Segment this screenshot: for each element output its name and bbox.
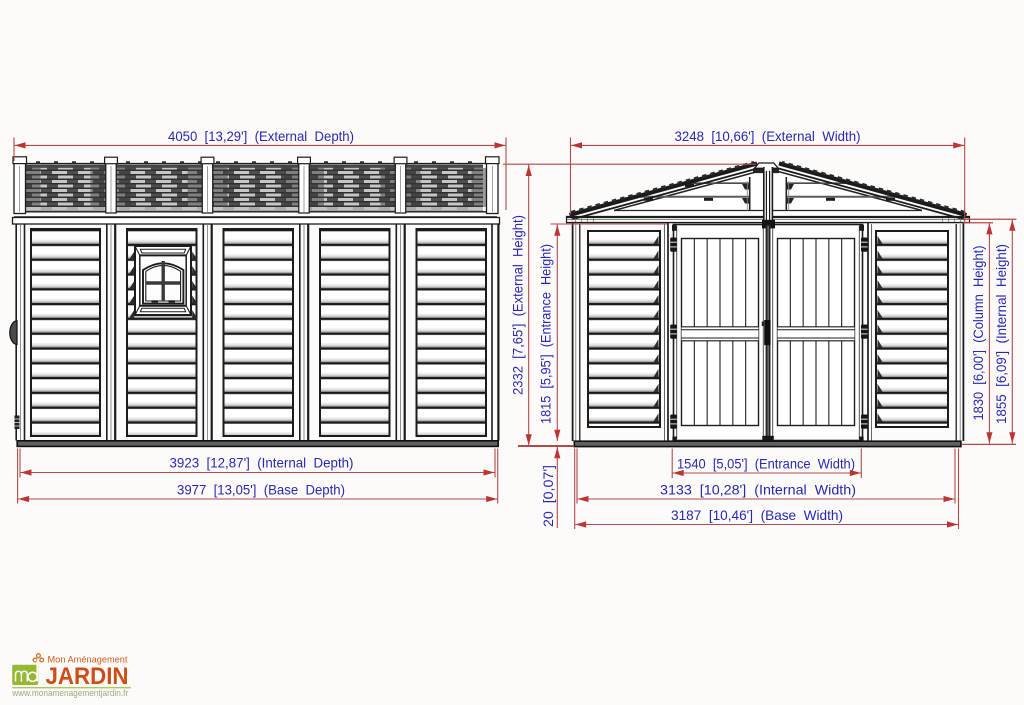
svg-text:1815 [5,95'] (Entrance Heig: 1815 [5,95'] (Entrance Height) bbox=[538, 244, 554, 424]
svg-text:4050 [13,29'] (External Dep: 4050 [13,29'] (External Depth) bbox=[168, 128, 354, 144]
svg-text:3187 [10,46'] (Base Width): 3187 [10,46'] (Base Width) bbox=[671, 507, 843, 523]
svg-text:20 [0,07']: 20 [0,07'] bbox=[540, 465, 556, 527]
svg-text:1540 [5,05'] (Entrance Widt: 1540 [5,05'] (Entrance Width) bbox=[677, 456, 855, 472]
svg-text:1830 [6,00'] (Column Height: 1830 [6,00'] (Column Height) bbox=[970, 245, 986, 420]
svg-text:1855 [6,09'] (Internal Heig: 1855 [6,09'] (Internal Height) bbox=[993, 244, 1009, 424]
svg-text:3133 [10,28'] (Internal Wid: 3133 [10,28'] (Internal Width) bbox=[660, 482, 856, 498]
svg-text:www.monamenagementjardin.fr: www.monamenagementjardin.fr bbox=[11, 688, 128, 699]
svg-text:3248 [10,66'] (External Wid: 3248 [10,66'] (External Width) bbox=[675, 128, 861, 144]
svg-text:3923 [12,87'] (Internal Dep: 3923 [12,87'] (Internal Depth) bbox=[170, 455, 354, 471]
svg-text:JARDIN: JARDIN bbox=[46, 663, 129, 690]
svg-text:3977 [13,05'] (Base Depth): 3977 [13,05'] (Base Depth) bbox=[177, 482, 345, 498]
svg-text:2332 [7,65'] (External Heig: 2332 [7,65'] (External Height) bbox=[510, 215, 526, 395]
